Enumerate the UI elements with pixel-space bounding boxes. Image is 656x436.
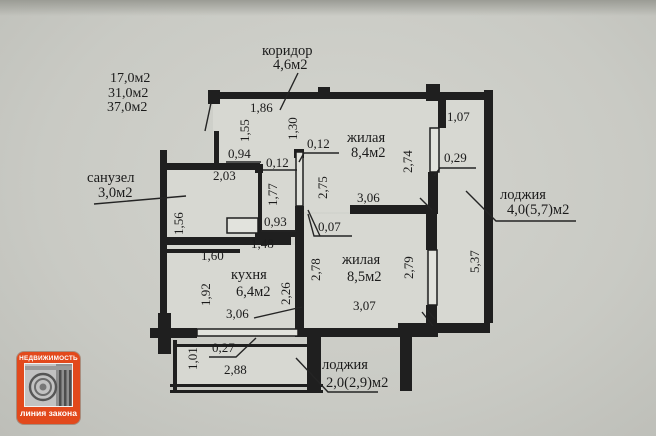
dim-0-12-right: 0,12 — [307, 137, 330, 150]
dim-0-93: 0,93 — [264, 215, 287, 228]
dim-2-75: 2,75 — [316, 176, 329, 199]
dim-2-79: 2,79 — [402, 256, 415, 279]
logo-subtitle: линия закона — [17, 408, 80, 418]
summary-area-1: 17,0м2 — [110, 72, 150, 86]
dim-corridor-width: 1,86 — [250, 101, 273, 114]
room-label-living-top: жилая — [347, 131, 385, 146]
summary-area-3: 37,0м2 — [107, 101, 147, 115]
dim-2-74: 2,74 — [401, 150, 414, 173]
dim-1-30: 1,30 — [286, 117, 299, 140]
dim-loggia-right-length: 5,37 — [468, 250, 481, 273]
dim-0-07: 0,07 — [318, 220, 341, 233]
dim-loggia-bottom-width: 2,88 — [224, 363, 247, 376]
room-area-loggia-bottom: 2,0(2,9)м2 — [326, 376, 388, 391]
dim-0-29: 0,29 — [444, 151, 467, 164]
dim-1-48: 1,48 — [251, 237, 274, 250]
dim-living-top-width: 3,06 — [357, 191, 380, 204]
room-area-loggia-right: 4,0(5,7)м2 — [507, 203, 569, 218]
scanned-floor-plan: 17,0м2 31,0м2 37,0м2 коридор 4,6м2 сануз… — [0, 0, 656, 436]
dim-1-60: 1,60 — [201, 249, 224, 262]
column-capital-icon — [24, 363, 73, 407]
dim-1-92: 1,92 — [199, 283, 212, 306]
dim-0-27: 0,27 — [212, 341, 235, 354]
logo-title: НЕДВИЖИМОСТЬ — [17, 352, 80, 362]
dim-2-78: 2,78 — [309, 258, 322, 281]
room-area-living-top: 8,4м2 — [351, 146, 386, 161]
dim-0-94: 0,94 — [228, 147, 251, 160]
dim-living-bottom-width: 3,07 — [353, 299, 376, 312]
summary-area-2: 31,0м2 — [108, 87, 148, 101]
dim-1-55: 1,55 — [238, 119, 251, 142]
room-label-loggia-right: лоджия — [500, 188, 546, 203]
dim-strip-width: 1,07 — [447, 110, 470, 123]
room-area-bathroom: 3,0м2 — [98, 186, 133, 201]
dim-2-26: 2,26 — [279, 282, 292, 305]
room-area-living-bottom: 8,5м2 — [347, 270, 382, 285]
dim-bathroom-width: 2,03 — [213, 169, 236, 182]
room-label-bathroom: санузел — [87, 171, 134, 186]
agency-logo: НЕДВИЖИМОСТЬ линия закона — [17, 352, 80, 424]
dim-1-01: 1,01 — [186, 347, 199, 370]
dim-kitchen-width: 3,06 — [226, 307, 249, 320]
room-label-kitchen: кухня — [231, 268, 267, 283]
dim-1-77: 1,77 — [266, 183, 279, 206]
room-area-corridor: 4,6м2 — [273, 58, 308, 73]
room-area-kitchen: 6,4м2 — [236, 285, 271, 300]
dim-1-56: 1,56 — [172, 212, 185, 235]
room-label-living-bottom: жилая — [342, 253, 380, 268]
room-label-loggia-bottom: лоджия — [322, 358, 368, 373]
dim-0-12-left: 0,12 — [266, 156, 289, 169]
